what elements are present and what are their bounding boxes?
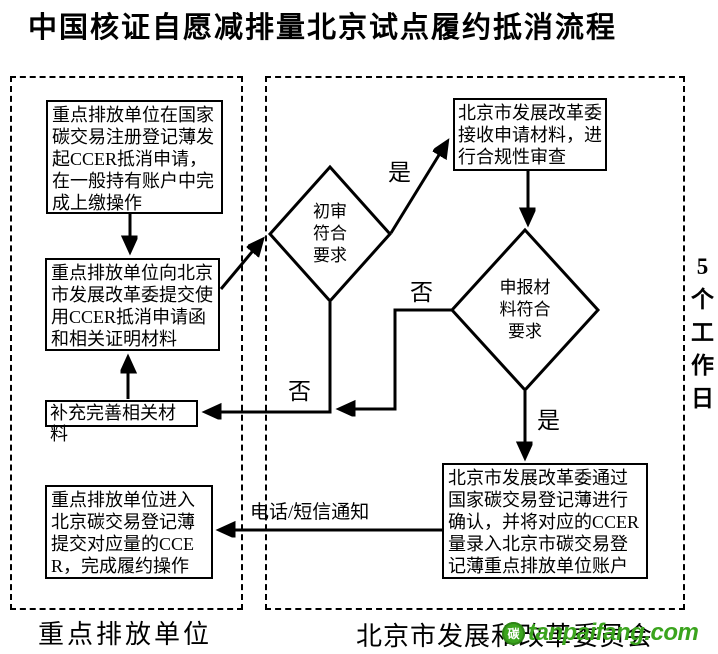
step-submit-application: 重点排放单位向北京市发展改革委提交使用CCER抵消申请函和相关证明材料 xyxy=(45,258,220,351)
edge-label-d2-yes: 是 xyxy=(537,409,560,433)
arrow-b2-to-d1 xyxy=(221,240,262,289)
duration-note-vertical: 5个工作日 xyxy=(689,250,716,415)
step-confirm-and-record: 北京市发展改革委通过国家碳交易登记薄进行确认，并将对应的CCER量录入北京市碳交… xyxy=(442,463,648,579)
step-supplement-materials: 补充完善相关材料 xyxy=(45,400,198,427)
flowchart-canvas: 中国核证自愿减排量北京试点履约抵消流程 重点排放单位在国家碳交易注册登记薄发起C… xyxy=(0,0,718,654)
step-receive-and-review: 北京市发展改革委接收申请材料，进行合规性审查 xyxy=(453,98,607,171)
step-initiate-ccer-offset: 重点排放单位在国家碳交易注册登记薄发起CCER抵消申请，在一般持有账户中完成上缴… xyxy=(46,100,223,214)
watermark: 碳 tanpaifang.com xyxy=(502,619,698,647)
edge-label-d1-no: 否 xyxy=(288,380,311,404)
decision-materials-review-label: 申报材料符合要求 xyxy=(497,277,553,343)
lane-caption-key-emission-unit: 重点排放单位 xyxy=(38,614,212,651)
arrow-d2-no-join xyxy=(340,310,452,409)
watermark-text: tanpaifang.com xyxy=(528,619,698,647)
step-complete-compliance: 重点排放单位进入北京碳交易登记薄提交对应量的CCER，完成履约操作 xyxy=(45,485,213,579)
arrow-d1-no-to-b3 xyxy=(206,302,330,412)
edge-label-d1-yes: 是 xyxy=(388,161,411,185)
decision-initial-review-label: 初审符合要求 xyxy=(310,201,350,267)
tanpaifang-logo-icon: 碳 xyxy=(502,622,525,645)
edge-label-notify: 电话/短信通知 xyxy=(250,501,369,525)
arrow-d1-yes-to-b5 xyxy=(391,142,447,233)
edge-label-d2-no: 否 xyxy=(410,281,433,305)
